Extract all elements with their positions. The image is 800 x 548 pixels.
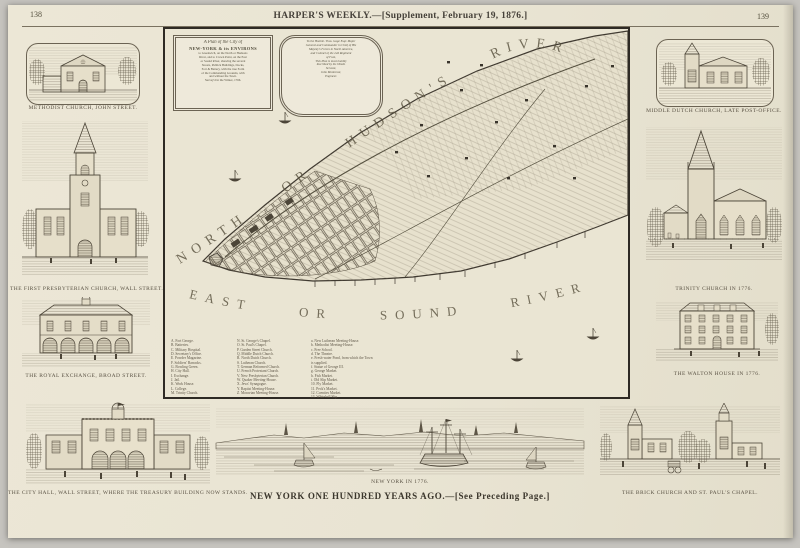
masthead-title: HARPER'S WEEKLY.—[Supplement, February 1…: [8, 11, 793, 21]
caption-methodist-church: METHODIST CHURCH, JOHN STREET.: [8, 105, 158, 111]
map-legend-column-1: A. Fort George.B. Batteries.C. Military …: [171, 339, 202, 395]
caption-city-hall: THE CITY HALL, WALL STREET, WHERE THE TR…: [8, 490, 228, 496]
map-legend-column-3: a. New Lutheran Meeting-House.b. Methodi…: [311, 339, 373, 400]
engraving-middle-dutch-church: [656, 39, 774, 107]
engraving-walton-house: [654, 299, 780, 363]
legend-entry: Z. Moravian Meeting-House.: [237, 391, 280, 395]
caption-brick-church-st-pauls: THE BRICK CHURCH AND ST. PAUL'S CHAPEL.: [580, 490, 800, 496]
legend-entry: M. Trinity Church.: [171, 391, 202, 395]
caption-walton-house: THE WALTON HOUSE IN 1776.: [642, 371, 792, 377]
engraving-brick-church-st-pauls: [598, 403, 782, 487]
engraving-city-hall: [24, 401, 212, 487]
caption-middle-dutch-church: MIDDLE DUTCH CHURCH, LATE POST-OFFICE.: [639, 108, 789, 114]
engraving-new-york-harbor: [214, 405, 586, 477]
engraving-royal-exchange: [20, 297, 152, 369]
page-title: NEW YORK ONE HUNDRED YEARS AGO.—[See Pre…: [230, 491, 570, 501]
svg-text:EAST OR SOUND RIVER: EAST OR SOUND RIVER: [188, 278, 589, 323]
cartouche-dedication-line: Engineer.: [280, 75, 382, 79]
caption-trinity-church: TRINITY CHURCH IN 1776.: [639, 286, 789, 292]
map-title-cartouche: A Plan of the City ofNEW-YORK & its ENVI…: [173, 35, 273, 111]
river-label-east: EAST OR SOUND RIVER: [188, 278, 589, 323]
scanned-page: 138 139 HARPER'S WEEKLY.—[Supplement, Fe…: [8, 5, 793, 538]
caption-first-presbyterian: THE FIRST PRESBYTERIAN CHURCH, WALL STRE…: [10, 286, 160, 292]
map-dedication-cartouche: To the Honble. Thos. Gage Esqr. MajorGen…: [279, 35, 383, 117]
map-legend-column-2: N. St. George's Chapel.O. St. Paul's Cha…: [237, 339, 280, 395]
engraving-trinity-church: [644, 123, 784, 281]
legend-entry: 13. Whitehall Slip.: [311, 395, 373, 399]
engraving-methodist-church: [26, 43, 140, 105]
city-skyline: [216, 432, 584, 449]
caption-royal-exchange: THE ROYAL EXCHANGE, BROAD STREET.: [11, 373, 161, 379]
map-of-new-york-1766: NORTH OR HUDSON'S RIVER EAST OR SOUND RI…: [163, 27, 630, 399]
engraving-first-presbyterian: [20, 117, 150, 282]
cartouche-title-line: Survey'd in the Winter, 1766.: [174, 79, 272, 83]
caption-new-york-1776: NEW YORK IN 1776.: [300, 479, 500, 485]
